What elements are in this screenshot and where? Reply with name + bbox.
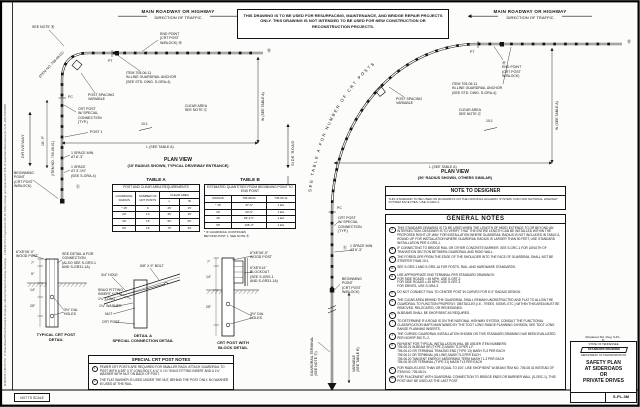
table-cell: 40' [205, 216, 232, 223]
ground-hatch [215, 291, 218, 294]
general-note-item: BIF CONNECTING TO BRIDGE RAIL OR OTHER C… [389, 247, 562, 255]
note-letter-badge: A [389, 227, 396, 234]
table-a: TABLE A POST AND CLEAR AREA REQUIREMENTS… [112, 177, 200, 232]
table-cell: 25' [159, 205, 179, 212]
block-dim-3: 25" [206, 305, 211, 309]
guardrail-post-tick [61, 157, 64, 160]
table-b-row: 20'43'-9"1 EA [205, 209, 296, 216]
table-b-header: ESTIMATED QUANTITIES FROM BEGINNING POIN… [205, 184, 296, 196]
table-cell: * 15' [205, 202, 232, 209]
plan-left-traffic-label: DIRECTION OF TRAFFIC [155, 16, 202, 21]
general-note-item: ITO DETERMINE IF A ROAD IS ON THE NATION… [389, 320, 562, 331]
note-text: FOR PLACEMENT WITH GUARDRAIL CONNECTION … [397, 376, 562, 384]
block-holes-label: 3½" DIA. HOLES [250, 312, 264, 321]
guardrail-post-tick [521, 43, 524, 46]
note-to-designer-box: NOTE TO DESIGNER THIS STANDARD TO BE USE… [385, 186, 566, 210]
table-cell: 50' [205, 222, 232, 229]
typical-dim-4: 25" [30, 304, 35, 308]
note-to-designer-title: NOTE TO DESIGNER [386, 187, 565, 196]
table-b-row: 50'106'-3"1 EA [205, 222, 296, 229]
not-to-scale-box: NOT TO SCALE [14, 393, 50, 403]
ground-hatch [71, 284, 74, 287]
guardrail-post-tick [456, 44, 459, 47]
guardrail-post-tick [553, 43, 556, 46]
table-cell: 20' [205, 209, 232, 216]
note-text: PAYMENT FOR TYPICAL INSTALLATION WILL BE… [397, 343, 507, 366]
typical-wood-post-label: 6"X8"X6'-0" WOOD POST [16, 250, 38, 259]
ground-hatch [59, 284, 62, 287]
guardrail-post-tick [155, 52, 158, 55]
ground-hatch [32, 284, 35, 287]
table-a-col-posts: NUMBER OF CRT POSTS [136, 192, 159, 205]
plan-right-end-ref: Ⓑ [627, 40, 631, 45]
note-text: FOR RADIUS LESS THAN OR EQUAL TO 100', U… [397, 367, 562, 375]
ground-hatch [63, 284, 66, 287]
plan-right-beginning-point: BEGINNING POINT (CRT POST W/BLOCK) [342, 277, 362, 294]
drawing-sheet: SEE TABLE A FOR NUMBER OF CRT POSTS [0, 0, 640, 407]
plan-left-ref-e: Ⓔ [76, 185, 80, 190]
ground-hatch [207, 291, 210, 294]
drawing-number: S-PL-3M [605, 393, 636, 402]
plan-right-subtitle: (50' RADIUS SHOWN, OTHERS SIMILAR) [418, 176, 492, 181]
note-letter-badge: F [389, 291, 396, 298]
general-note-item: LFOR RADIUS LESS THAN OR EQUAL TO 100', … [389, 367, 562, 375]
ground-hatch [79, 284, 82, 287]
ground-hatch [251, 291, 254, 294]
table-cell: 15' [179, 205, 199, 212]
typical-dim-2: 9" [31, 272, 34, 276]
ground-hatch [40, 284, 43, 287]
plan-left-item-rail-vert: (ITEM NO. 705-08.01) [51, 141, 55, 176]
general-note-item: ATHIS STANDARD DRAWING IS TO BE USED WHE… [389, 227, 562, 246]
plan-left-end-ref: Ⓑ [267, 49, 271, 54]
note-letter-badge: H [389, 312, 396, 319]
table-a-col-radius: GUARDRAIL RADIUS [113, 192, 136, 205]
guardrail-post-tick [81, 52, 84, 55]
plan-left-end-point: END POINT (CRT POST W/BLOCK) Ⓜ [160, 32, 182, 45]
ground-hatch [219, 291, 222, 294]
note-letter-badge: E [389, 274, 396, 281]
usage-notice-text: THIS DRAWING IS TO BE USED FOR RESURFACI… [242, 13, 444, 30]
ground-hatch [75, 284, 78, 287]
table-cell: 1 EA [266, 202, 295, 209]
table-b-col-a: 705-08.01 [232, 196, 267, 203]
guardrail-post-tick [61, 72, 64, 75]
guardrail-post-tick [596, 43, 599, 46]
detail-a-washer-label: 1¾" WASHER [99, 304, 122, 308]
special-notes-box: SPECIAL CRT POST NOTES 1FEWER CRT POSTS … [88, 355, 234, 390]
note-text: THE FORESLOPE FROM THE EDGE OF THE SHOUL… [397, 256, 562, 264]
general-notes-title: GENERAL NOTES [386, 215, 565, 224]
table-a-grid: POST AND CLEAR AREA REQUIREMENTS GUARDRA… [112, 184, 200, 233]
plan-right-end-point: Ⓜ END POINT (CRT POST W/BLOCK) [502, 61, 521, 78]
note-letter-badge: K [389, 343, 396, 350]
note-text: IF CONNECTING TO BRIDGE RAIL OR OTHER CO… [397, 247, 562, 255]
guardrail-post-tick [61, 146, 64, 149]
table-b-row: * 15'37'-6"1 EA [205, 202, 296, 209]
title-block: STATE OF TENNESSEE STANDARD DRAWING DEPA… [570, 341, 637, 403]
general-note-item: FDO NOT CONNECT RAIL TO CENTER POST IN C… [389, 291, 562, 298]
note-letter-badge: D [389, 266, 396, 273]
plan-left-dim-18-9: 18'- 9" [41, 136, 45, 146]
guardrail-post-tick [61, 178, 64, 181]
note-text: USE APPROPRIATE END TERMINAL PER STANDAR… [397, 274, 495, 289]
detail-a-title: DETAIL A SPECIAL CONNECTION DETAIL [112, 334, 173, 344]
table-b-footnote: * IF GUARDRAIL CONTINUES BEYOND POST 1, … [204, 231, 296, 238]
plan-left-pc: PC [68, 95, 73, 99]
plan-left-clear-area: CLEAR AREA SEE NOTE Ⓖ [185, 104, 207, 113]
plan-right-dim-w: W (SEE TABLE A) [555, 101, 559, 130]
special-note-item: 1FEWER CRT POSTS ARE REQUIRED FOR SMALLE… [92, 366, 231, 377]
guardrail-post-tick [575, 43, 578, 46]
block-blockout-label: 6"X8"X14" BLOCKOUT (SEE S-GRS-1 AND S-GR… [250, 266, 278, 283]
plan-left-dim-l: L (SEE TABLE A) [146, 145, 173, 149]
general-note-item: MFOR PLACEMENT WITH GUARDRAIL CONNECTION… [389, 376, 562, 384]
standard-drawing-banner: STANDARD DRAWING [579, 347, 627, 353]
general-note-item: GTHE CLEAR AREA BEHIND THE GUARDRAIL SHA… [389, 299, 562, 310]
plan-left-crt-special: CRT POST W/ SPECIAL CONNECTION (TYP.) [78, 107, 102, 124]
table-cell: 93'-1½" [232, 216, 267, 223]
plan-left-drawing [30, 16, 263, 203]
table-cell: 15' [179, 212, 199, 219]
plan-left-see-note: SEE NOTE Ⓑ [32, 25, 54, 29]
note-text: DO NOT CONNECT RAIL TO CENTER POST IN CU… [397, 291, 521, 298]
ground-hatch [36, 284, 39, 287]
guardrail-post-tick [331, 200, 334, 203]
guardrail-post-tick [333, 179, 336, 182]
guardrail-post-tick [123, 52, 126, 55]
block-wood-post-label: 6"X8"X6'-0" WOOD POST [250, 251, 272, 260]
special-note-item: 2THE FLAT WASHER IS USED UNDER THE NUT, … [92, 379, 231, 387]
table-a-col-clear: CLEAR AREA [159, 192, 199, 199]
guardrail-post-tick [186, 52, 189, 55]
plan-left-beginning-point: BEGINNING POINT (CRT POST W/BLOCK) [14, 171, 34, 188]
ground-hatch [67, 284, 70, 287]
plan-left-space-min: 1 SPACE MIN. AT 6'-3" [71, 151, 94, 160]
note-letter-badge: G [389, 299, 396, 306]
ground-hatch [83, 284, 86, 287]
block-detail-title: CRT POST WITH BLOCK DETAIL [217, 341, 249, 351]
table-cell: 18 [136, 225, 159, 232]
guardrail-post-tick [532, 43, 535, 46]
plan-left-space-1: 1 SPACE AT 3'-1½" (SEE S-GRA-4) [71, 165, 96, 178]
guardrail-post-tick [176, 52, 179, 55]
note-text: W-BEAMS SHALL BE SHOP BENT AS REQUIRED. [397, 312, 470, 319]
general-note-item: CTHE FORESLOPE FROM THE EDGE OF THE SHOU… [389, 256, 562, 264]
plan-right-pc: PC [337, 206, 342, 210]
guardrail-post-tick [144, 52, 147, 55]
guardrail-post-tick [61, 104, 64, 107]
table-cell: 1 EA [266, 222, 295, 229]
table-a-row: 40'1550'20' [113, 218, 200, 225]
plan-right-post-spacing: POST SPACING VARIABLE [396, 97, 422, 106]
general-note-item: HW-BEAMS SHALL BE SHOP BENT AS REQUIRED. [389, 312, 562, 319]
note-letter-badge: B [389, 247, 396, 254]
plan-right-pt: PT [470, 50, 475, 54]
table-cell: 50' [113, 225, 136, 232]
plan-left-pt: PT [108, 59, 113, 63]
table-cell: 20' [179, 218, 199, 225]
guardrail-post-tick [207, 52, 210, 55]
guardrail-post-tick [61, 115, 64, 118]
detail-a-bolt-label: 5/8" X 9" BOLT [140, 264, 164, 268]
table-cell: 50' [159, 218, 179, 225]
note-letter-badge: L [389, 367, 396, 374]
guardrail-post-tick [467, 43, 470, 46]
special-notes-title: SPECIAL CRT POST NOTES [89, 356, 233, 364]
general-note-item: DSEE S-GRS-1 AND S-GRS-1A FOR POSTS, RAI… [389, 266, 562, 273]
table-cell: 106'-3" [232, 222, 267, 229]
plan-left-title: PLAN VIEW [164, 157, 192, 163]
general-notes-box: GENERAL NOTES ATHIS STANDARD DRAWING IS … [385, 214, 566, 390]
plan-right-slope: 10:1 [486, 119, 493, 123]
title-block-title: SAFETY PLANAT SIDEROADSORPRIVATE DRIVES [571, 360, 636, 384]
guardrail-post-tick [510, 43, 513, 46]
detail-a-nut-label: NUT [105, 312, 112, 316]
table-b-grid: ESTIMATED QUANTITIES FROM BEGINNING POIN… [204, 184, 296, 230]
note-to-designer-text: THIS STANDARD TO BE USED ON ROADWAYS ON … [386, 196, 565, 206]
block-dim-1: 7" [207, 260, 210, 264]
table-cell: 30' [179, 225, 199, 232]
table-b-col-radius: RADIUS [205, 196, 232, 203]
block-dim-2: 14" [206, 275, 211, 279]
note-letter-badge: 1 [92, 366, 99, 373]
guardrail-post-tick [331, 276, 334, 279]
table-b-title: TABLE B [204, 177, 296, 182]
table-a-row: 50'1875'30' [113, 225, 200, 232]
guardrail-post-tick [331, 254, 334, 257]
guardrail-post-tick [488, 43, 491, 46]
table-cell: 9 [136, 205, 159, 212]
table-cell: 75' [159, 225, 179, 232]
guardrail-post-tick [249, 52, 252, 55]
note-letter-badge: J [389, 333, 396, 340]
plan-left-slope: 10:1 [141, 122, 148, 126]
typical-post-title: TYPICAL CRT POST DETAIL [37, 333, 76, 343]
standard-drawing-banner-text: STANDARD DRAWING [582, 348, 626, 352]
table-a-header: POST AND CLEAR AREA REQUIREMENTS [113, 184, 200, 192]
guardrail-post-tick [331, 243, 334, 246]
detail-a-insert-label: SNUG FITTING INSERT ¾" I.D., 1¾" LONG [98, 288, 124, 301]
guardrail-post-tick [61, 167, 64, 170]
ground-hatch [211, 291, 214, 294]
table-cell: 15 [136, 218, 159, 225]
guardrail-post-tick [331, 265, 334, 268]
plan-right-variable-dim: VARIABLE (SEE TABLE B) [352, 347, 361, 372]
plan-right-clear-area: CLEAR AREA SEE NOTE Ⓖ [459, 108, 481, 117]
table-b-row: 40'93'-1½"1 EA [205, 216, 296, 223]
typical-holes-label: 3½" DIA. HOLES [64, 308, 78, 317]
table-cell: 1 EA [266, 209, 295, 216]
note-text: THE FLAT WASHER IS USED UNDER THE NUT, B… [100, 379, 231, 387]
guardrail-post-tick [102, 52, 105, 55]
note-text: TO DETERMINE IF A ROAD IS ON THE NATIONA… [397, 320, 562, 331]
guardrail-post-tick [61, 94, 64, 97]
plan-right-traffic-label: DIRECTION OF TRAFFIC [507, 16, 554, 21]
plan-right-title: PLAN VIEW [441, 169, 469, 175]
title-block-footer-spacer [571, 393, 605, 402]
plan-right-terminal-label: GUARDRAIL TERMINAL (SEE NOTE Ⓔ) [310, 337, 319, 376]
general-notes-list: ATHIS STANDARD DRAWING IS TO BE USED WHE… [386, 224, 565, 384]
table-cell: 10 [136, 212, 159, 219]
table-cell: 25' [159, 212, 179, 219]
general-note-item: JTHE CURVED GUARDRAIL INSTALLATION SHOWN… [389, 333, 562, 341]
guardrail-post-tick [542, 43, 545, 46]
table-cell: 1 EA [266, 216, 295, 223]
ground-hatch [255, 291, 258, 294]
ground-hatch [28, 284, 31, 287]
guardrail-post-tick [197, 52, 200, 55]
guardrail-post-tick [61, 83, 64, 86]
table-a-title: TABLE A [112, 177, 200, 182]
note-text: SEE S-GRS-1 AND S-GRS-1A FOR POSTS, RAIL… [397, 266, 516, 273]
guardrail-post-tick [239, 52, 242, 55]
plan-right-ref-e: Ⓔ [343, 246, 347, 251]
title-block-footer: S-PL-3M [571, 392, 636, 402]
note-text: THE CURVED GUARDRAIL INSTALLATION SHOWN … [397, 333, 562, 341]
plan-left-post1: POST 1 [90, 130, 103, 134]
typical-dim-1: 7" [31, 261, 34, 265]
guardrail-post-tick [564, 43, 567, 46]
guardrail-post-tick [61, 136, 64, 139]
note-letter-badge: 2 [92, 379, 99, 386]
plan-left-post-spacing: POST SPACING VARIABLE [88, 93, 114, 102]
plan-left-driveway: DRIVEWAY [21, 134, 26, 158]
detail-a-crt-post-label: CRT POST [102, 320, 120, 324]
guardrail-post-tick [331, 233, 334, 236]
plan-right-side-road: SIDE ROAD [291, 140, 296, 166]
guardrail-post-tick [165, 52, 168, 55]
plan-right-inline-anchor: ITEM 705-06.11 IN-LINE GUARDRAIL ANCHOR … [452, 82, 502, 95]
guardrail-post-tick [218, 52, 221, 55]
plan-right-crt-special: CRT POST W/ SPECIAL CONNECTION (TYP.) [338, 216, 362, 233]
guardrail-post-tick [332, 189, 335, 192]
general-note-item: KPAYMENT FOR TYPICAL INSTALLATION WILL B… [389, 343, 562, 366]
margin-file-info: 8/18/2023 2:48:25 PM P:\StandDrawOfficia… [4, 16, 7, 386]
table-a-col-w: W [179, 199, 199, 206]
title-block-title-line: PRIVATE DRIVES [571, 378, 636, 384]
typical-see-detail-label: SEE DETAIL A FOR CONNECTION (ALSO SEE S-… [62, 252, 96, 269]
guardrail-post-tick [331, 222, 334, 225]
typical-dim-3: 14" [30, 288, 35, 292]
ground-hatch [243, 291, 246, 294]
usage-notice-box: THIS DRAWING IS TO BE USED FOR RESURFACI… [237, 9, 449, 39]
guardrail-post-tick [61, 125, 64, 128]
plan-left-dim-w: W (SEE TABLE A) [261, 92, 265, 121]
guardrail-post-tick [228, 52, 231, 55]
title-block-department: DEPARTMENT OF TRANSPORTATION [571, 354, 636, 357]
guardrail-post-tick [61, 188, 64, 191]
note-text: THIS STANDARD DRAWING IS TO BE USED WHEN… [397, 227, 562, 246]
guardrail-post-tick [607, 43, 610, 46]
table-cell: 37'-6" [232, 202, 267, 209]
general-note-item: EUSE APPROPRIATE END TERMINAL PER STANDA… [389, 274, 562, 289]
note-letter-badge: C [389, 256, 396, 263]
table-b: TABLE B ESTIMATED QUANTITIES FROM BEGINN… [204, 177, 296, 238]
plan-left-inline-anchor: ITEM 705-06.11 IN-LINE GUARDRAIL ANCHOR … [126, 71, 176, 84]
table-a-row: 20'1025'15' [113, 212, 200, 219]
note-letter-badge: I [389, 320, 396, 327]
guardrail-post-tick [92, 52, 95, 55]
ground-hatch [235, 291, 238, 294]
table-cell: 20' [113, 212, 136, 219]
not-to-scale-label: NOT TO SCALE [15, 394, 49, 403]
table-a-row: * 15'925'15' [113, 205, 200, 212]
table-cell: 40' [113, 218, 136, 225]
plan-right-space-min: 1 SPACE MIN. AT 6'-3" [350, 244, 373, 253]
table-a-col-l: L [159, 199, 179, 206]
table-cell: * 15' [113, 205, 136, 212]
detail-a-hole-label: 3/4" HOLE [101, 273, 118, 277]
ground-hatch [247, 291, 250, 294]
guardrail-post-tick [586, 43, 589, 46]
special-notes-list: 1FEWER CRT POSTS ARE REQUIRED FOR SMALLE… [89, 364, 233, 386]
arc-label: SEE TABLE A FOR NUMBER OF CRT POSTS [307, 60, 376, 192]
guardrail-post-tick [134, 52, 137, 55]
ground-hatch [239, 291, 242, 294]
note-text: THE CLEAR AREA BEHIND THE GUARDRAIL SHAL… [397, 299, 562, 310]
table-b-col-b: 705-06.11 [266, 196, 295, 203]
table-cell: 43'-9" [232, 209, 267, 216]
note-text: FEWER CRT POSTS ARE REQUIRED FOR SMALLER… [100, 366, 231, 377]
plan-left-subtitle: (15' RADIUS SHOWN, TYPICAL DRIVEWAY ENTR… [127, 164, 228, 169]
note-letter-badge: M [389, 376, 396, 383]
guardrail-post-tick [331, 211, 334, 214]
title-block-state: STATE OF TENNESSEE [571, 343, 636, 346]
